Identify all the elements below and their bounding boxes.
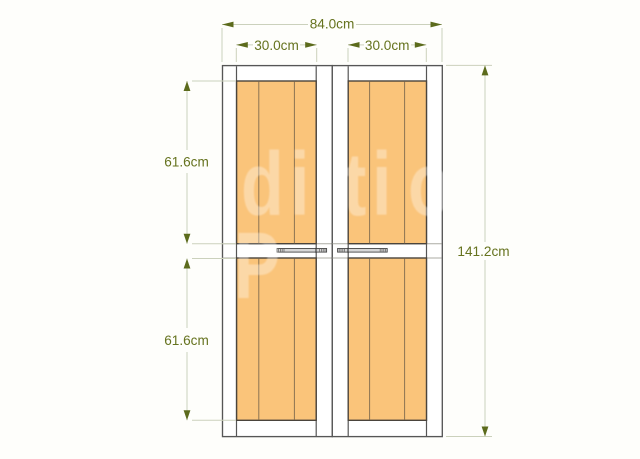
svg-text:30.0cm: 30.0cm [365, 38, 410, 53]
svg-text:84.0cm: 84.0cm [310, 17, 355, 32]
svg-text:o: o [408, 135, 451, 235]
svg-text:i: i [372, 135, 392, 235]
svg-text:t: t [343, 135, 366, 235]
svg-text:P: P [234, 212, 280, 318]
svg-text:61.6cm: 61.6cm [164, 333, 209, 348]
svg-text:61.6cm: 61.6cm [164, 155, 209, 170]
svg-text:141.2cm: 141.2cm [457, 244, 509, 259]
svg-text:30.0cm: 30.0cm [254, 38, 299, 53]
svg-text:i: i [290, 135, 310, 235]
